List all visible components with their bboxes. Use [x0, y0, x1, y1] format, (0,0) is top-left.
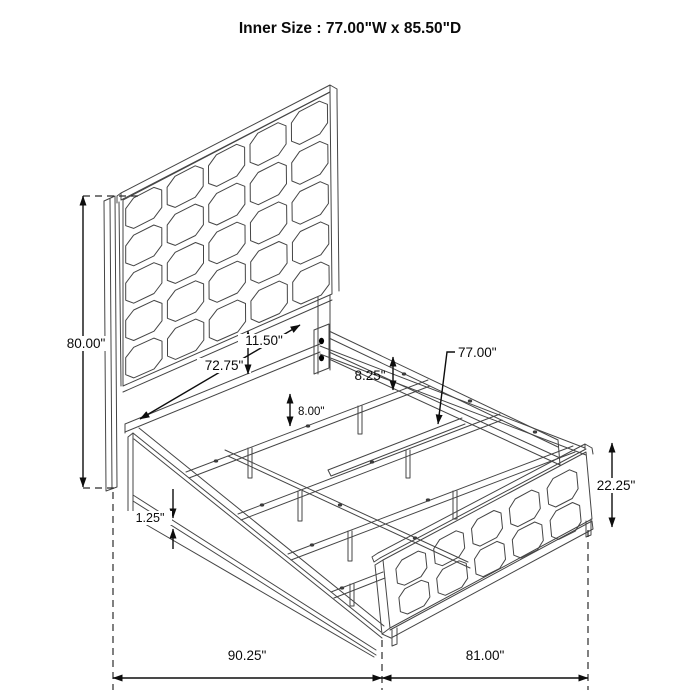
dim-support-rail-height-label: 8.25"	[354, 368, 385, 383]
headboard	[104, 85, 339, 491]
dim-overall-width-label: 81.00"	[466, 648, 505, 663]
dim-inner-slat-width-label: 72.75"	[205, 358, 244, 373]
diagram-canvas: 80.00" 72.75" 11.50" 8.25" 8.00" 77.00" …	[0, 0, 700, 700]
bracket-hole	[319, 338, 324, 344]
dim-rail-trim-gap-label: 1.25"	[136, 511, 165, 525]
bed-dimension-diagram: 80.00" 72.75" 11.50" 8.25" 8.00" 77.00" …	[0, 0, 700, 700]
screw-dots	[214, 372, 537, 589]
footboard	[372, 444, 593, 646]
dim-headboard-height-label: 80.00"	[67, 336, 106, 351]
page-title: Inner Size : 77.00"W x 85.50"D	[239, 20, 461, 37]
headboard-right-post	[318, 295, 330, 374]
cross-bar	[328, 418, 465, 476]
dim-headboard-panel-gap-label: 11.50"	[245, 333, 283, 348]
dim-overall-length-label: 90.25"	[228, 648, 267, 663]
dim-leg-height-label: 8.00"	[298, 406, 324, 418]
bed-frame-drawing	[104, 85, 593, 657]
footboard-left-edge	[375, 560, 390, 634]
front-side-rail	[128, 428, 384, 657]
support-rail	[329, 331, 560, 465]
dim-footboard-height-label: 22.25"	[597, 478, 636, 493]
headboard-tufted-grid	[126, 101, 330, 378]
dim-inner-width-label: 77.00"	[458, 345, 497, 360]
